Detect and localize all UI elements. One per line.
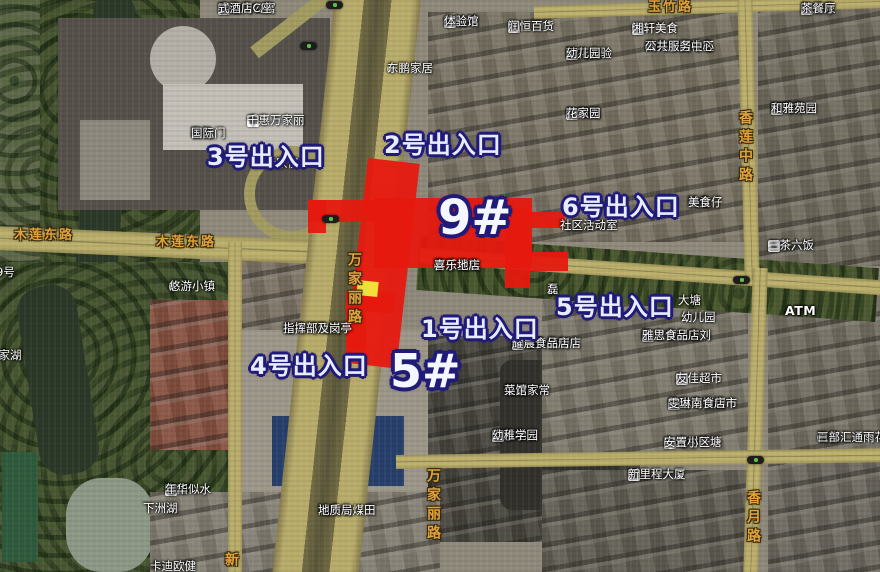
- poi-label: ▤润恒百货: [508, 20, 520, 33]
- exit-label: 5号出入口: [556, 287, 674, 322]
- map-canvas: ▦喜盈门公寓式酒店C座◻大益茶体验馆▤润恒百货湘轩美食○雨花家园社区公共服务中心…: [0, 0, 880, 572]
- exit-label: 3号出入口: [207, 137, 325, 172]
- poi-label: ▤酷宜便利店刘雅思食品店: [642, 329, 654, 342]
- traffic-light-icon: [326, 1, 343, 9]
- exit-label: 1号出入口: [421, 309, 539, 344]
- poi-label: ▤佳宜连锁超市雯琳南食店: [668, 397, 680, 410]
- poi-label: ▣喜乐地幼稚学园: [492, 429, 504, 442]
- road-label: 木莲东路: [156, 231, 216, 250]
- station-number-label: 5#: [390, 344, 461, 398]
- road-label: 玉竹路: [648, 0, 693, 15]
- road-label: 万家丽路: [344, 252, 364, 328]
- road-label: 万家丽路: [423, 468, 443, 544]
- exit-label: 2号出入口: [384, 125, 502, 160]
- road-label: 木莲东路: [14, 224, 74, 243]
- road-label: 香莲中路: [735, 110, 755, 186]
- poi-label: ⌂雨花家园和雅苑: [771, 102, 783, 115]
- exit-label: 6号出入口: [562, 187, 680, 222]
- exit-label: 4号出入口: [250, 346, 368, 381]
- poi-label: ⌂仁和雨花家园: [566, 107, 578, 120]
- poi-label: 新里程大厦▦: [628, 468, 640, 481]
- poi-label: ▦喜盈门公寓式酒店C座: [218, 2, 230, 15]
- poi-label: 雨花家园社区公共服务中心: [645, 40, 651, 50]
- station-number-label: 9#: [438, 190, 512, 246]
- poi-label: 春田似水年华☕: [165, 483, 177, 496]
- poi-label: 雨花实验幼儿园▞: [566, 47, 578, 60]
- poi-label: ▤千惠万家丽: [247, 114, 259, 127]
- traffic-light-icon: [733, 276, 750, 284]
- station-overlay-exit5-arm: [528, 252, 568, 271]
- traffic-light-icon: [300, 42, 317, 50]
- poi-label: 百世汇通雨花三部: [817, 431, 823, 441]
- road-label: 香月路: [743, 490, 763, 547]
- poi-label: 悠游小镇: [169, 280, 175, 290]
- poi-label: 东鹏家居: [387, 62, 393, 72]
- traffic-light-icon: [322, 215, 339, 223]
- poi-label: 湘轩美食○: [632, 22, 644, 35]
- poi-label: ☕利源泉茶餐厅: [801, 2, 813, 15]
- poi-label: 罗莎蛋糕喜乐地店: [434, 259, 440, 269]
- traffic-light-icon: [747, 456, 764, 464]
- poi-label: ☕三茶六饭: [768, 239, 780, 252]
- poi-label: 友佳超市▤: [676, 372, 688, 385]
- poi-label: ◻大益茶体验馆: [444, 15, 456, 28]
- poi-label: ⌂大塘村长塘安置小区: [664, 436, 676, 449]
- road-label: 新: [221, 552, 241, 571]
